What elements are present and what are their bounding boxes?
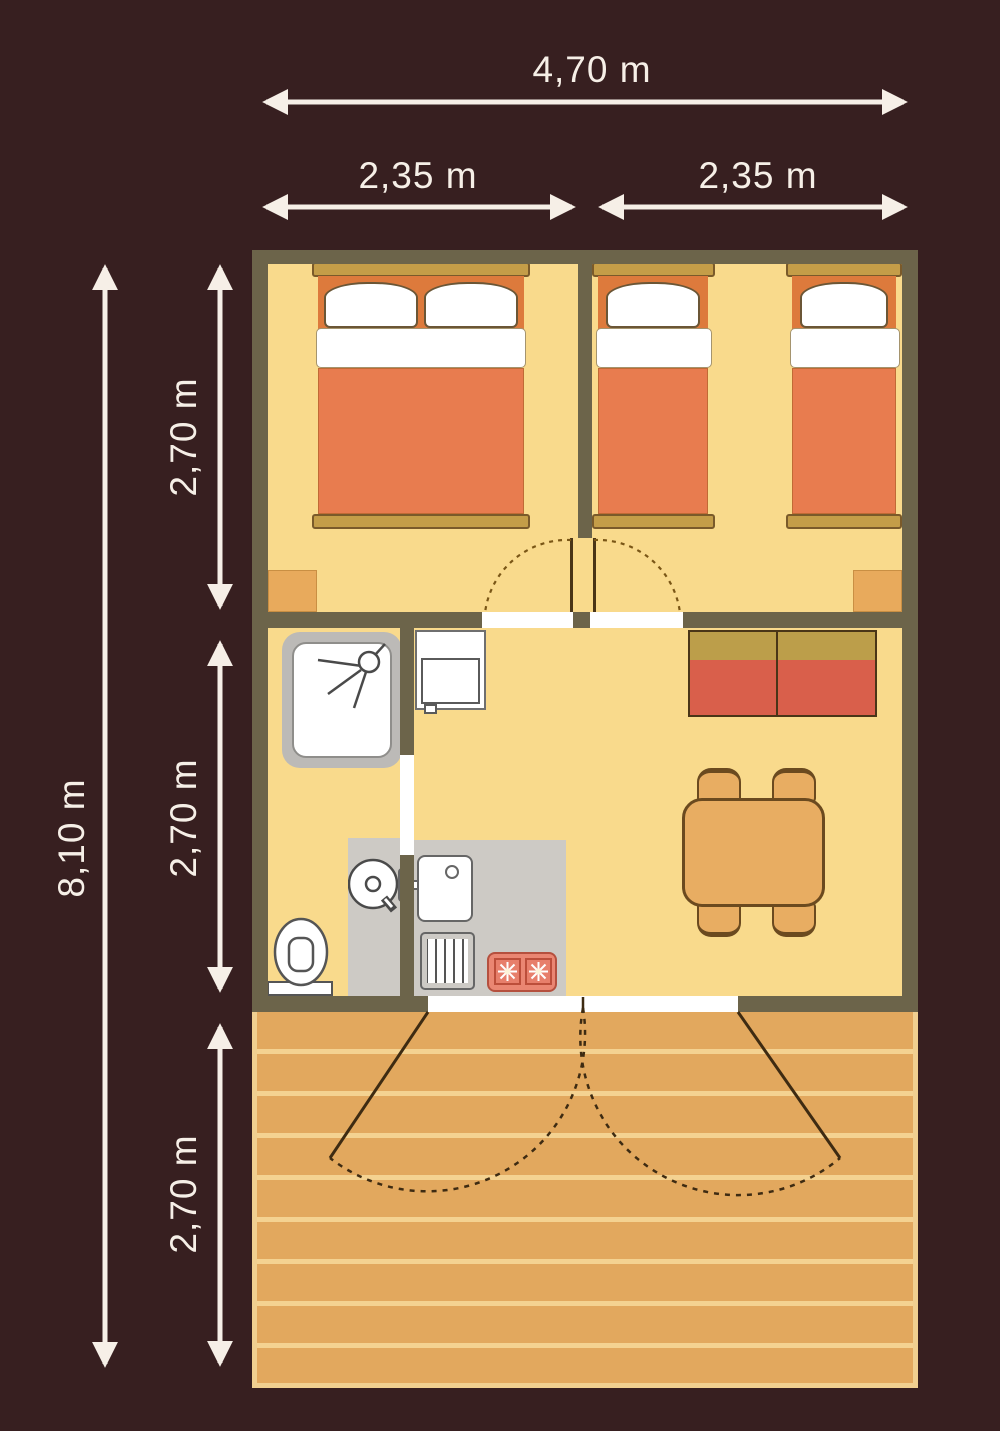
kitchen-sink [417,855,473,922]
bathroom-door-opening [400,755,414,855]
wall-front-right [738,996,902,1012]
wall-bathroom-lower [400,855,414,996]
bedroom2-door-opening [590,612,683,628]
wardrobe-left [268,570,317,612]
fridge-door [421,658,480,704]
label-bedrooms-depth: 2,70 m [163,377,205,496]
sofa [688,630,877,717]
sofa-backrest [690,632,875,660]
double-bed-blanket [318,368,524,514]
washing-machine-icon [348,838,400,948]
wall-bathroom-upper [400,628,414,755]
sofa-divider [776,632,778,715]
wall-right [902,250,918,1012]
single-bed-2-footboard [786,514,902,529]
wall-left [252,250,268,1012]
floor-plan-canvas: 4,70 m 2,35 m 2,35 m 8,10 m 2,70 m 2,70 … [0,0,1000,1431]
label-overall-width: 4,70 m [532,49,651,91]
sofa-seat [690,660,875,715]
patio-door-opening [428,996,738,1012]
dining-table [682,798,825,907]
label-overall-depth: 8,10 m [51,778,93,897]
label-bedroom1-width: 2,35 m [358,155,477,197]
single-bed-1-footboard [592,514,715,529]
label-terrace-depth: 2,70 m [163,1134,205,1253]
label-living-depth: 2,70 m [163,758,205,877]
pillow [606,282,700,328]
single-bed-1-headboard [592,262,715,277]
gas-burner-icon [494,958,521,985]
double-bed-sheet [316,328,526,368]
wardrobe-right [853,570,902,612]
single-bed-2-blanket [792,368,896,514]
wall-bedrooms-bottom-center [573,612,590,628]
double-bed-headboard [312,262,530,277]
single-bed-2-headboard [786,262,902,277]
single-bed-1-blanket [598,368,708,514]
shower [282,632,402,768]
sink-drain [445,865,459,879]
fridge-handle [424,704,437,714]
single-bed-2-sheet [790,328,900,368]
double-bed-footboard [312,514,530,529]
wall-bedrooms-bottom-right [683,612,902,628]
wall-bedroom-divider [578,264,592,538]
shower-spray-icon [282,632,402,768]
cabin-floor-plan [252,250,918,1388]
toilet-icon [264,916,336,998]
pillow [324,282,418,328]
bedroom2-door-leaf [593,538,596,612]
bedroom1-door-leaf [570,538,573,612]
wall-front-left [268,996,428,1012]
pillow [424,282,518,328]
bedroom1-door-opening [482,612,573,628]
wall-top [252,250,918,264]
drying-rack [420,932,475,990]
terrace-deck [252,1012,918,1388]
pillow [800,282,888,328]
wall-bedrooms-bottom-left [268,612,482,628]
gas-burner-icon [525,958,552,985]
label-bedroom2-width: 2,35 m [698,155,817,197]
single-bed-1-sheet [596,328,712,368]
